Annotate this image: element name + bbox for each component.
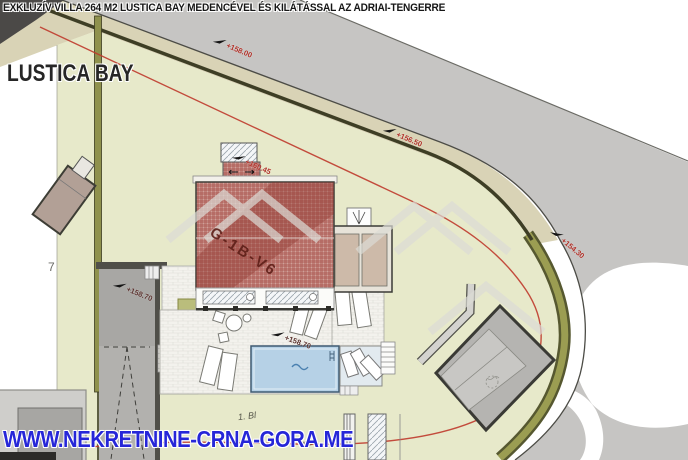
listing-title: EXKLUZÍV VILLA 264 M2 LUSTICA BAY MEDENC… (3, 2, 445, 14)
watermark-url: WWW.NEKRETNINE-CRNA-GORA.ME (3, 426, 353, 453)
parcel-number: 7 (48, 260, 55, 274)
location-label: LUSTICA BAY (7, 60, 134, 88)
window-strip (196, 288, 334, 311)
pool (251, 346, 339, 392)
site-plan-image: EXKLUZÍV VILLA 264 M2 LUSTICA BAY MEDENC… (0, 0, 688, 460)
